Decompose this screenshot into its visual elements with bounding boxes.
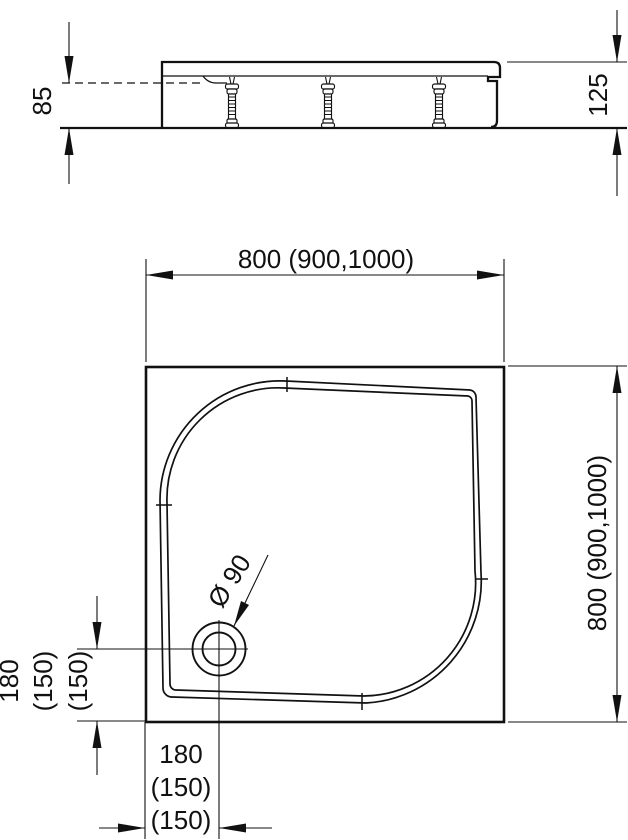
width-label: 800 (900,1000): [238, 244, 414, 274]
arrowhead: [118, 824, 145, 833]
dimension-depth-85: 85: [27, 22, 74, 184]
offset-left-line3: (150): [63, 651, 93, 712]
drain-pocket: [203, 76, 227, 83]
dimension-drain-offset-left: 180 (150) (150): [0, 596, 147, 775]
basin-rim-inner: [167, 388, 476, 696]
dimension-height-800: 800 (900,1000): [508, 366, 627, 722]
side-view: 85 125: [27, 10, 627, 196]
arrowhead: [613, 695, 622, 722]
arrowhead: [219, 824, 246, 833]
arrowhead: [234, 601, 249, 626]
arrowhead: [65, 128, 74, 155]
arrowhead: [477, 271, 504, 280]
offset-bottom-line1: 180: [159, 739, 202, 769]
adjustable-foot-1: [226, 77, 239, 128]
drawing-svg: 85 125: [0, 0, 628, 840]
arrowhead: [613, 366, 622, 393]
dimension-height-125: 125: [507, 10, 627, 196]
offset-bottom-line2: (150): [151, 772, 212, 802]
offset-left-line2: (150): [28, 651, 58, 712]
dimension-width-800: 800 (900,1000): [146, 244, 504, 362]
arrowhead: [93, 721, 102, 748]
offset-left-line1: 180: [0, 659, 24, 702]
arrowhead: [65, 56, 74, 83]
shower-tray-technical-drawing: 85 125: [0, 0, 628, 840]
dimension-drain-offset-bottom: 180 (150) (150): [99, 722, 272, 839]
arrowhead: [146, 271, 173, 280]
offset-bottom-line3: (150): [151, 805, 212, 835]
arrowhead: [613, 128, 622, 155]
arrowhead: [613, 35, 622, 62]
adjustable-foot-3: [433, 77, 446, 128]
adjustable-foot-2: [322, 77, 335, 128]
plan-view: Ø 90 800 (900,1000) 800 (900,1000): [0, 244, 627, 839]
height-label: 125: [583, 73, 613, 116]
basin-rim-outer: [160, 381, 481, 703]
drain-diameter-label: Ø 90: [202, 549, 257, 613]
plan-height-label: 800 (900,1000): [582, 455, 612, 631]
arrowhead: [93, 622, 102, 649]
depth-label: 85: [27, 87, 57, 116]
dimension-drain-diameter: Ø 90: [202, 549, 268, 626]
